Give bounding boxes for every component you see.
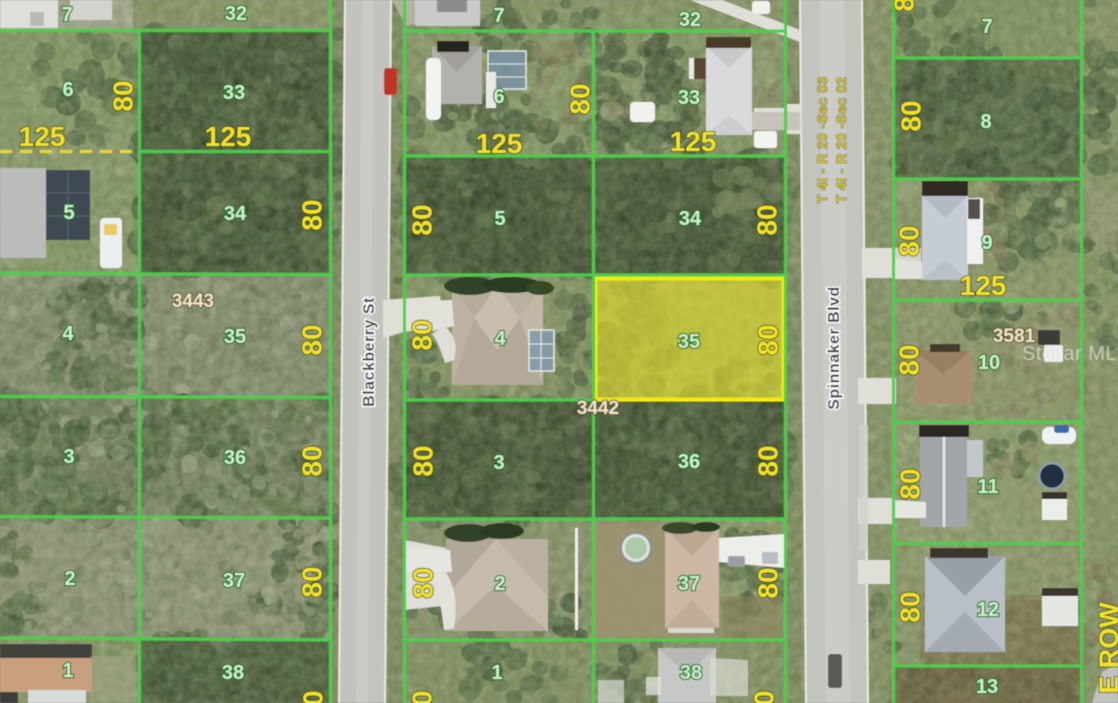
svg-text:125: 125 <box>19 121 66 152</box>
svg-text:32: 32 <box>679 9 701 31</box>
svg-text:36: 36 <box>224 447 246 469</box>
svg-text:37: 37 <box>678 573 700 595</box>
svg-text:80: 80 <box>894 344 925 375</box>
svg-text:80: 80 <box>108 80 139 111</box>
svg-text:4: 4 <box>62 323 74 345</box>
svg-text:Spinnaker Blvd: Spinnaker Blvd <box>826 286 843 409</box>
svg-text:36: 36 <box>678 451 700 473</box>
svg-text:80: 80 <box>297 199 328 230</box>
svg-text:3443: 3443 <box>172 291 214 312</box>
svg-text:10: 10 <box>978 352 1000 374</box>
svg-text:E ROW: E ROW <box>1094 602 1118 694</box>
svg-text:80: 80 <box>408 567 439 598</box>
svg-text:80: 80 <box>896 100 927 131</box>
svg-text:34: 34 <box>679 208 702 230</box>
svg-text:6: 6 <box>493 86 504 108</box>
svg-text:125: 125 <box>476 128 523 159</box>
svg-text:Stellar MLS: Stellar MLS <box>1022 343 1118 365</box>
svg-text:1: 1 <box>62 660 73 682</box>
svg-text:4: 4 <box>494 328 506 350</box>
svg-text:33: 33 <box>678 87 700 109</box>
svg-text:80: 80 <box>297 566 328 597</box>
svg-text:33: 33 <box>223 82 245 104</box>
svg-text:80: 80 <box>749 690 780 703</box>
svg-text:80: 80 <box>408 445 439 476</box>
svg-text:80: 80 <box>565 83 596 114</box>
svg-text:37: 37 <box>223 570 245 592</box>
svg-text:80: 80 <box>752 204 783 235</box>
svg-text:38: 38 <box>680 662 702 684</box>
svg-text:125: 125 <box>960 270 1007 301</box>
svg-text:80: 80 <box>889 0 920 12</box>
svg-text:80: 80 <box>297 324 328 355</box>
svg-text:125: 125 <box>205 121 252 152</box>
svg-text:1: 1 <box>491 662 502 684</box>
svg-text:T 4I - R 20 -Sec 03: T 4I - R 20 -Sec 03 <box>814 77 830 204</box>
svg-text:7: 7 <box>61 4 72 26</box>
svg-text:125: 125 <box>670 126 717 157</box>
svg-text:9: 9 <box>981 232 992 254</box>
svg-text:80: 80 <box>407 204 438 235</box>
svg-text:3442: 3442 <box>577 398 619 419</box>
svg-text:34: 34 <box>224 203 247 225</box>
svg-text:11: 11 <box>977 476 998 498</box>
svg-text:Blackberry St: Blackberry St <box>361 297 378 407</box>
svg-text:5: 5 <box>63 202 74 224</box>
svg-text:3: 3 <box>63 446 74 468</box>
svg-text:12: 12 <box>977 599 999 621</box>
svg-text:80: 80 <box>753 445 784 476</box>
svg-text:80: 80 <box>297 445 328 476</box>
svg-text:80: 80 <box>298 690 329 703</box>
svg-text:8: 8 <box>980 111 991 133</box>
svg-text:7: 7 <box>981 16 992 38</box>
svg-text:7: 7 <box>493 5 504 27</box>
svg-text:T 4I - R 20 -Sec 02: T 4I - R 20 -Sec 02 <box>833 77 849 204</box>
svg-text:5: 5 <box>494 208 505 230</box>
svg-text:80: 80 <box>753 567 784 598</box>
svg-text:80: 80 <box>753 324 784 355</box>
svg-text:80: 80 <box>894 225 925 256</box>
svg-text:3: 3 <box>493 452 504 474</box>
svg-text:2: 2 <box>64 568 75 590</box>
svg-text:80: 80 <box>895 591 926 622</box>
svg-text:35: 35 <box>224 326 246 348</box>
svg-text:2: 2 <box>494 573 505 595</box>
svg-text:6: 6 <box>62 79 73 101</box>
svg-text:80: 80 <box>895 468 926 499</box>
svg-text:32: 32 <box>225 3 247 25</box>
svg-text:13: 13 <box>976 676 998 698</box>
svg-text:38: 38 <box>222 662 244 684</box>
svg-text:35: 35 <box>678 331 700 353</box>
svg-text:80: 80 <box>407 690 438 703</box>
svg-text:80: 80 <box>407 319 438 350</box>
